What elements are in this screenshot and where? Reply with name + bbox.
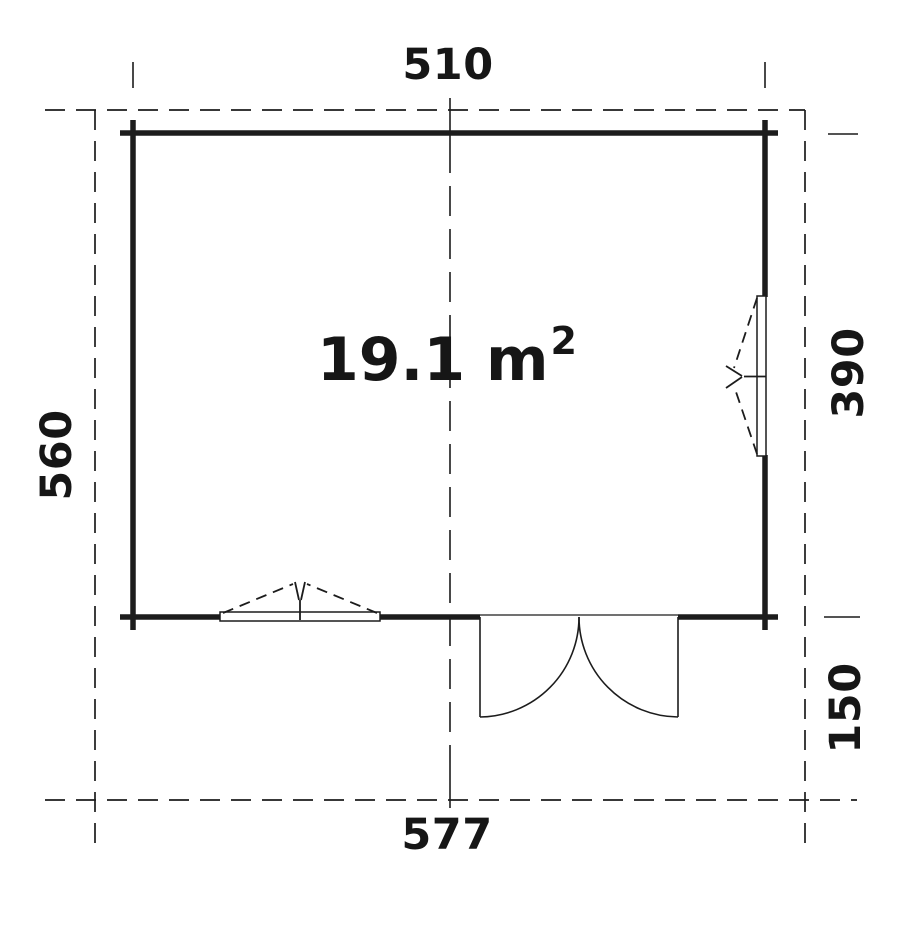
area-value: 19.1 m (317, 325, 548, 395)
roof-outline (45, 110, 857, 850)
window-right (726, 296, 766, 456)
window-right-swing-lower (734, 386, 757, 454)
window-bottom (220, 582, 380, 621)
dimension-top-width: 510 (402, 40, 493, 90)
window-bottom-notch-left (295, 582, 299, 600)
window-right-notch-lower (726, 377, 742, 388)
dimension-left-depth: 560 (32, 409, 82, 500)
dimension-bottom-width: 577 (401, 810, 492, 860)
window-bottom-swing-right (307, 584, 377, 613)
window-bottom-notch-right (301, 582, 305, 600)
window-right-swing-upper (734, 298, 757, 368)
dimension-right-canopy-depth: 150 (821, 662, 871, 753)
dimension-right-wall-depth: 390 (824, 327, 874, 418)
floor-plan: 510 577 560 390 150 19.1 m2 (0, 0, 900, 945)
door-swing-arc-left (480, 617, 579, 717)
window-bottom-swing-left (223, 584, 293, 613)
area-label: 19.1 m2 (317, 325, 577, 395)
door-swing-arc-right (579, 617, 678, 717)
double-door (480, 615, 678, 717)
floor-plan-drawing (0, 0, 900, 945)
area-exponent: 2 (551, 319, 577, 363)
